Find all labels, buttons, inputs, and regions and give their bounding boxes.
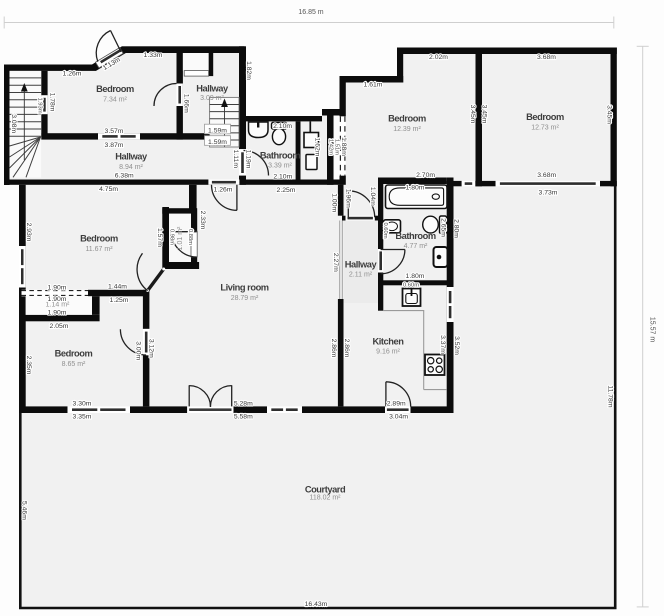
svg-text:7.34 m²: 7.34 m² <box>103 97 127 104</box>
svg-text:1.96m: 1.96m <box>345 189 352 208</box>
svg-text:1.25m: 1.25m <box>110 297 129 304</box>
svg-text:2.33m: 2.33m <box>199 211 206 230</box>
svg-text:1.90m: 1.90m <box>48 296 67 303</box>
svg-text:8.65 m²: 8.65 m² <box>62 361 86 368</box>
svg-text:4.77 m²: 4.77 m² <box>404 243 428 250</box>
svg-text:4.75m: 4.75m <box>99 186 118 193</box>
svg-text:3.09 m²: 3.09 m² <box>200 95 224 102</box>
svg-text:3.37m: 3.37m <box>439 335 446 354</box>
svg-text:15.57 m: 15.57 m <box>649 317 656 342</box>
svg-text:Bathroom: Bathroom <box>395 231 435 241</box>
svg-text:1.61m: 1.61m <box>364 82 383 89</box>
svg-text:Bathroom: Bathroom <box>260 151 300 161</box>
svg-text:3.08m: 3.08m <box>10 114 17 133</box>
svg-text:2.25m: 2.25m <box>277 187 296 194</box>
svg-text:0.88m: 0.88m <box>187 229 193 245</box>
svg-text:11.67 m²: 11.67 m² <box>85 246 113 253</box>
svg-text:3.87m: 3.87m <box>105 142 124 149</box>
svg-text:5.58m: 5.58m <box>234 414 253 421</box>
svg-text:1.04m: 1.04m <box>369 187 376 206</box>
svg-text:11.78m: 11.78m <box>607 385 614 408</box>
svg-text:6.38m: 6.38m <box>115 173 134 180</box>
svg-text:2.35m: 2.35m <box>25 356 32 375</box>
svg-text:1.44m: 1.44m <box>108 284 127 291</box>
svg-text:0.60m: 0.60m <box>382 222 388 238</box>
svg-text:1.57m: 1.57m <box>156 228 163 247</box>
svg-text:1.80m: 1.80m <box>406 273 425 280</box>
svg-text:1.59m: 1.59m <box>208 139 227 146</box>
svg-text:Hallway: Hallway <box>196 84 229 94</box>
svg-text:Hallway: Hallway <box>115 152 148 162</box>
svg-text:1.88m: 1.88m <box>340 137 347 156</box>
svg-text:3.73m: 3.73m <box>539 189 558 196</box>
svg-text:Bedroom: Bedroom <box>80 234 118 244</box>
svg-text:2.02m: 2.02m <box>429 54 448 61</box>
svg-text:3.45m: 3.45m <box>480 105 487 124</box>
svg-text:3.45m: 3.45m <box>606 105 613 124</box>
svg-text:Kitchen: Kitchen <box>373 337 405 347</box>
svg-text:2.65m: 2.65m <box>440 218 447 237</box>
svg-text:2.93m: 2.93m <box>25 223 32 242</box>
svg-text:1.42m: 1.42m <box>328 139 334 155</box>
svg-text:1.26m: 1.26m <box>214 186 233 193</box>
svg-text:2.89m: 2.89m <box>387 400 406 407</box>
svg-text:Bedroom: Bedroom <box>55 349 93 359</box>
svg-text:12.39 m²: 12.39 m² <box>393 126 421 133</box>
svg-text:0.60m: 0.60m <box>403 283 419 289</box>
svg-text:1.80m: 1.80m <box>406 184 425 191</box>
svg-text:1.78m: 1.78m <box>49 93 56 112</box>
svg-text:1.01 m²: 1.01 m² <box>177 226 184 250</box>
svg-text:16.43m: 16.43m <box>305 601 328 608</box>
svg-text:8.94 m²: 8.94 m² <box>119 164 143 171</box>
svg-text:3.57m: 3.57m <box>105 128 124 135</box>
svg-text:3.35m: 3.35m <box>73 414 92 421</box>
svg-text:1.90m: 1.90m <box>48 285 67 292</box>
svg-text:1.26m: 1.26m <box>63 71 82 78</box>
svg-text:3.52m: 3.52m <box>453 336 460 355</box>
svg-text:Living room: Living room <box>220 283 268 293</box>
svg-text:28.79 m²: 28.79 m² <box>231 295 259 302</box>
svg-text:9.16 m²: 9.16 m² <box>376 349 400 356</box>
svg-text:2.10m: 2.10m <box>273 123 292 130</box>
svg-text:1.51m: 1.51m <box>333 139 339 155</box>
svg-text:2.86m: 2.86m <box>330 339 337 358</box>
svg-text:1.93m: 1.93m <box>37 97 43 113</box>
svg-text:3.45m: 3.45m <box>469 105 476 124</box>
svg-text:118.02 m²: 118.02 m² <box>310 495 342 502</box>
svg-text:3.68m: 3.68m <box>537 54 556 61</box>
svg-text:3.39 m²: 3.39 m² <box>268 163 292 170</box>
svg-text:3.00m: 3.00m <box>135 341 142 360</box>
svg-text:Bedroom: Bedroom <box>388 114 426 124</box>
svg-text:1.11m: 1.11m <box>232 150 239 169</box>
svg-text:2.10m: 2.10m <box>273 173 292 180</box>
svg-text:5.28m: 5.28m <box>234 400 253 407</box>
svg-text:0.98m: 0.98m <box>168 229 174 245</box>
svg-text:2.80m: 2.80m <box>453 219 460 238</box>
svg-text:Bedroom: Bedroom <box>96 84 134 94</box>
svg-text:3.12m: 3.12m <box>147 339 154 358</box>
svg-text:1.59m: 1.59m <box>208 127 227 134</box>
svg-text:3.04m: 3.04m <box>389 414 408 421</box>
svg-text:3.68m: 3.68m <box>537 172 556 179</box>
svg-text:Bedroom: Bedroom <box>526 112 564 122</box>
svg-text:Courtyard: Courtyard <box>305 485 346 495</box>
svg-text:1.00m: 1.00m <box>331 193 338 212</box>
svg-text:16.85 m: 16.85 m <box>298 9 323 16</box>
svg-text:2.86m: 2.86m <box>343 339 350 358</box>
svg-text:2.05m: 2.05m <box>50 323 69 330</box>
svg-text:1.66m: 1.66m <box>183 94 190 113</box>
svg-text:1.33m: 1.33m <box>144 52 163 59</box>
svg-text:1.90m: 1.90m <box>48 309 67 316</box>
svg-text:2.70m: 2.70m <box>416 172 435 179</box>
svg-text:1.62m: 1.62m <box>314 138 321 157</box>
svg-text:5.46m: 5.46m <box>20 501 27 520</box>
svg-text:12.73 m²: 12.73 m² <box>531 125 559 132</box>
svg-text:2.11 m²: 2.11 m² <box>349 272 373 279</box>
svg-text:1.82m: 1.82m <box>245 61 252 80</box>
svg-text:3.30m: 3.30m <box>73 400 92 407</box>
svg-text:1.19m: 1.19m <box>245 150 252 169</box>
svg-text:Hallway: Hallway <box>345 260 378 270</box>
svg-text:2.27m: 2.27m <box>332 253 339 272</box>
